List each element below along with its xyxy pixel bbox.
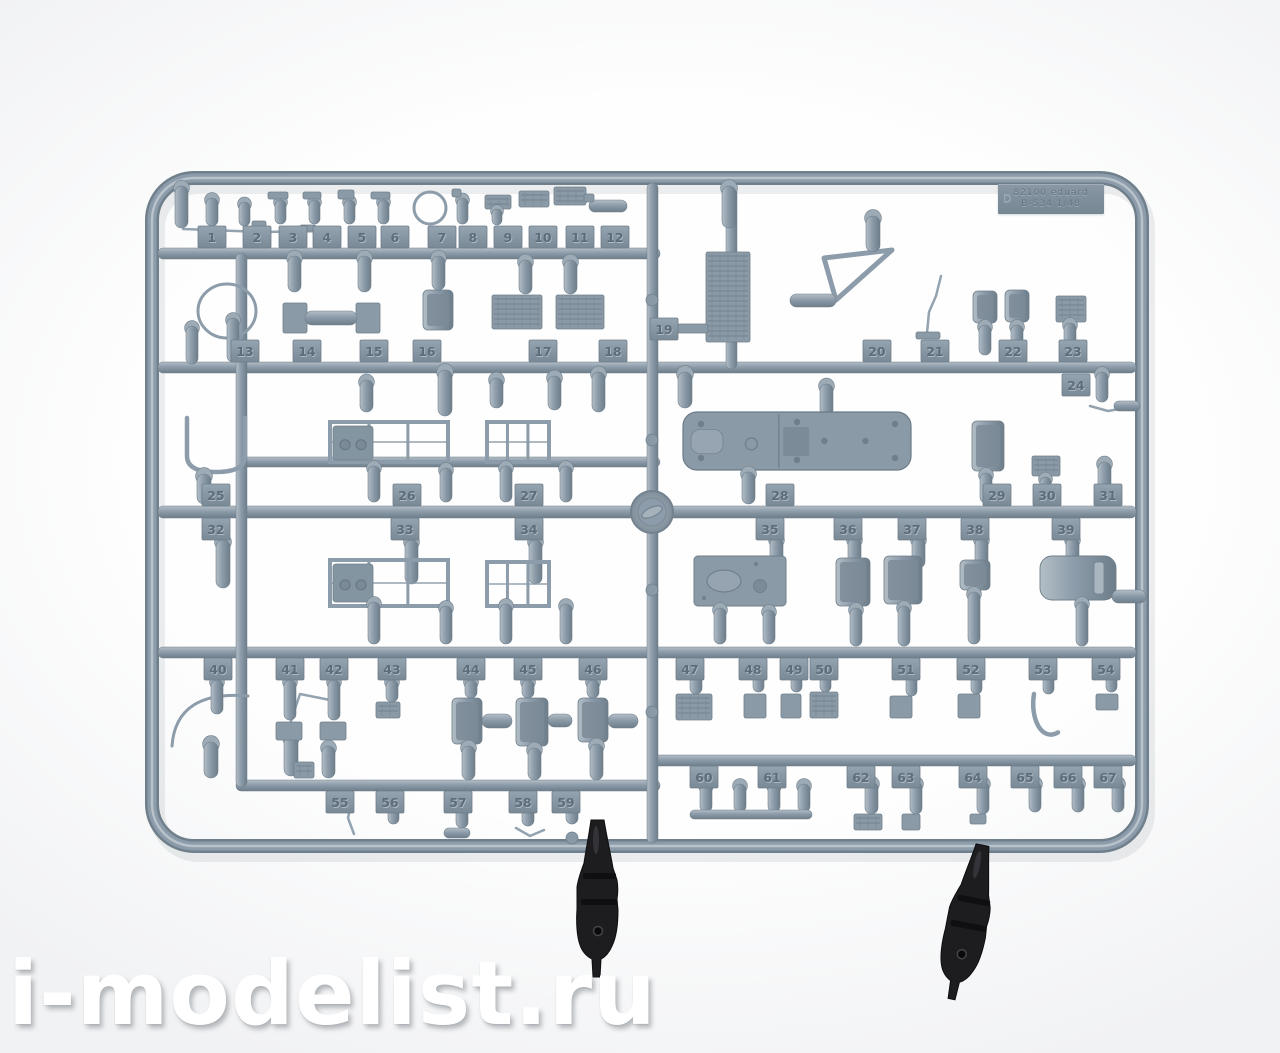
- part-number: 23: [1064, 344, 1081, 359]
- part-tab-12: 1212: [601, 226, 629, 248]
- part-tab-60: 6060: [690, 766, 718, 788]
- part-number: 45: [519, 662, 536, 677]
- part-number: 2: [253, 230, 262, 245]
- sprue-part: [206, 198, 218, 226]
- sprue-part: [482, 714, 512, 728]
- part-tab-23: 2323: [1059, 340, 1087, 362]
- part-tab-44: 4444: [457, 658, 485, 680]
- sprue-part: [898, 606, 910, 646]
- part-number: 59: [557, 795, 574, 810]
- part-number: 67: [1099, 770, 1116, 785]
- part-tab-7: 77: [428, 226, 456, 248]
- part-tab-65: 6565: [1011, 766, 1039, 788]
- part-tab-32: 3232: [202, 518, 230, 540]
- sprue-label-tag: D 82100 eduard B-534 1/48: [998, 184, 1104, 214]
- tag-kit-name: B-534 1/48: [998, 199, 1104, 210]
- part-number: 34: [520, 522, 538, 537]
- product-photo: 1122334455667788991010111112121313141415…: [0, 0, 1280, 1053]
- part-number: 52: [962, 662, 979, 677]
- part-number: 43: [383, 662, 400, 677]
- sprue-part: [522, 680, 534, 698]
- mold-mark: D: [1003, 192, 1011, 205]
- part-tab-62: 6262: [847, 766, 875, 788]
- sprue-part: [958, 694, 980, 718]
- part-detail: [356, 580, 366, 590]
- part-number: 46: [584, 662, 602, 677]
- part-tab-35: 3535: [756, 518, 784, 540]
- part-number: 20: [868, 344, 886, 359]
- sprue-part: [646, 706, 658, 718]
- part-number: 10: [534, 230, 552, 245]
- part-tab-13: 1313: [231, 340, 259, 362]
- sprue-part: [763, 610, 775, 644]
- part-detail: [794, 419, 800, 425]
- part-number: 9: [504, 230, 513, 245]
- part-number: 7: [438, 230, 447, 245]
- part-tab-59: 5959: [552, 791, 580, 813]
- part-tab-22: 2222: [999, 340, 1027, 362]
- sprue-part: [303, 192, 321, 199]
- part-number: 40: [209, 662, 227, 677]
- part-number: 15: [365, 344, 382, 359]
- part-number: 27: [520, 488, 537, 503]
- sprue-part: [587, 680, 599, 698]
- sprue-part: [970, 814, 986, 824]
- part-tab-51: 5151: [892, 658, 920, 680]
- sprue-part: [276, 722, 302, 740]
- sprue-part: [284, 680, 296, 720]
- sprue-part: [320, 722, 346, 740]
- part-detail: [892, 455, 898, 461]
- part-number: 57: [449, 795, 466, 810]
- part-tab-46: 4646: [579, 658, 607, 680]
- part-number: 58: [514, 795, 531, 810]
- part-number: 17: [534, 344, 551, 359]
- part-detail: [977, 295, 993, 319]
- part-tab-49: 4949: [780, 658, 808, 680]
- part-tab-41: 4141: [276, 658, 304, 680]
- sprue-part: [294, 762, 314, 778]
- part-detail: [456, 702, 478, 740]
- sprue-part: [927, 276, 941, 333]
- sprue-part: [333, 564, 373, 602]
- part-tab-14: 1414: [293, 340, 321, 362]
- sprue-runner: [158, 248, 660, 259]
- part-tab-27: 2727: [515, 484, 543, 506]
- part-detail: [520, 702, 544, 742]
- sprue-part: [360, 380, 373, 412]
- part-tab-42: 4242: [320, 658, 348, 680]
- sprue-part: [438, 370, 452, 416]
- sprue-part: [560, 466, 572, 502]
- part-number: 36: [839, 522, 857, 537]
- clip-ridge: [583, 873, 616, 879]
- sprue-part: [592, 372, 605, 412]
- sprue-part: [564, 260, 577, 294]
- sprue-part: [519, 191, 549, 207]
- sprue-part: [646, 434, 658, 446]
- part-tab-10: 1010: [529, 226, 557, 248]
- part-number: 63: [897, 770, 914, 785]
- sprue-part: [1096, 372, 1108, 402]
- sprue-part: [500, 466, 512, 502]
- part-detail: [862, 438, 868, 444]
- part-tab-56: 5656: [376, 791, 404, 813]
- part-number: 61: [763, 770, 780, 785]
- sprue-part: [1076, 602, 1088, 646]
- part-number: 33: [396, 522, 413, 537]
- part-number: 26: [398, 488, 416, 503]
- sprue-part: [744, 694, 766, 718]
- sprue-part: [338, 190, 354, 199]
- part-tab-20: 2020: [863, 340, 891, 362]
- part-detail: [888, 560, 918, 600]
- part-tab-2: 22: [243, 226, 271, 248]
- part-number: 21: [926, 344, 943, 359]
- part-tab-16: 1616: [413, 340, 441, 362]
- sprue-part: [378, 200, 389, 224]
- sprue-part: [344, 200, 355, 224]
- sprue-part: [452, 189, 461, 197]
- sprue-part: [722, 186, 736, 228]
- part-detail: [340, 580, 350, 590]
- part-tab-30: 3030: [1033, 484, 1061, 506]
- part-number: 50: [815, 662, 833, 677]
- sprue-part: [560, 604, 572, 644]
- sprue-part: [590, 744, 603, 780]
- part-number: 44: [462, 662, 480, 677]
- sprue-part: [457, 198, 468, 224]
- sprue-part: [283, 303, 307, 333]
- sprue-part: [968, 592, 980, 644]
- sprue-part: [490, 378, 503, 408]
- part-detail: [783, 427, 809, 456]
- part-number: 42: [325, 662, 342, 677]
- part-number: 22: [1004, 344, 1021, 359]
- part-detail: [356, 440, 366, 450]
- part-number: 64: [964, 770, 982, 785]
- part-detail: [754, 580, 767, 593]
- part-number: 32: [207, 522, 224, 537]
- part-detail: [754, 562, 758, 566]
- sprue-part: [322, 746, 335, 778]
- sprue-part: [1114, 401, 1140, 411]
- part-tab-48: 4848: [739, 658, 767, 680]
- part-tab-25: 2525: [202, 484, 230, 506]
- sprue-part: [376, 702, 400, 718]
- part-number: 8: [469, 230, 478, 245]
- sprue-part: [820, 384, 833, 416]
- part-tab-64: 6464: [959, 766, 987, 788]
- sprue-part: [492, 209, 502, 225]
- sprue-part: [678, 372, 692, 408]
- part-tab-21: 2121: [921, 340, 949, 362]
- part-number: 5: [358, 230, 367, 245]
- part-number: 19: [655, 322, 672, 337]
- part-number: 60: [695, 770, 713, 785]
- sprue-part: [268, 192, 288, 199]
- part-detail: [691, 429, 723, 453]
- part-detail: [427, 294, 449, 326]
- part-number: 24: [1067, 378, 1085, 393]
- part-tab-39: 3939: [1052, 518, 1080, 540]
- sprue-part: [850, 608, 862, 646]
- sprue-part: [646, 294, 658, 306]
- sprue-part: [1112, 590, 1146, 603]
- sprue-part: [275, 200, 286, 224]
- part-tab-4: 44: [313, 226, 341, 248]
- sprue-part: [465, 680, 477, 698]
- part-number: 3: [289, 230, 298, 245]
- part-detail: [698, 421, 704, 427]
- sprue-part: [414, 192, 446, 224]
- clip-ridge: [581, 899, 617, 905]
- part-number: 30: [1038, 488, 1056, 503]
- part-tab-34: 3434: [515, 518, 543, 540]
- part-tab-6: 66: [381, 226, 409, 248]
- part-detail: [582, 702, 604, 738]
- part-tab-24: 2424: [1062, 374, 1090, 396]
- sprue-part: [1040, 556, 1116, 600]
- sprue-part: [444, 828, 470, 838]
- sprue-part: [440, 468, 452, 502]
- part-number: 16: [418, 344, 436, 359]
- sprue-part: [781, 694, 801, 718]
- part-tab-43: 4343: [378, 658, 406, 680]
- sprue-part: [734, 784, 746, 812]
- clip-body: [932, 841, 1003, 1003]
- part-tab-58: 5858: [509, 791, 537, 813]
- part-number: 12: [606, 230, 623, 245]
- part-tab-45: 4545: [514, 658, 542, 680]
- part-number: 6: [391, 230, 400, 245]
- part-number: 55: [331, 795, 348, 810]
- sprue-part: [440, 606, 452, 644]
- sprue: 1122334455667788991010111112121313141415…: [0, 0, 1280, 1053]
- sprue-part: [368, 466, 380, 502]
- part-number: 39: [1057, 522, 1074, 537]
- part-tab-40: 4040: [204, 658, 232, 680]
- part-tab-11: 1111: [566, 226, 594, 248]
- part-number: 53: [1034, 662, 1051, 677]
- part-tab-61: 6161: [758, 766, 786, 788]
- sprue-part: [239, 202, 250, 226]
- part-tab-54: 5454: [1092, 658, 1120, 680]
- tag-kit-number: 82100 eduard: [998, 188, 1104, 199]
- sprue-part: [175, 186, 188, 228]
- part-detail: [840, 562, 866, 602]
- sprue-part: [186, 326, 198, 364]
- part-tab-26: 2626: [393, 484, 421, 506]
- sprue-part: [211, 680, 223, 714]
- sprue-part: [866, 216, 880, 252]
- part-tab-36: 3636: [834, 518, 862, 540]
- sprue-part: [902, 814, 920, 830]
- sprue-part: [216, 540, 230, 588]
- part-tab-17: 1717: [529, 340, 557, 362]
- part-number: 31: [1099, 488, 1116, 503]
- part-number: 62: [852, 770, 869, 785]
- part-tab-57: 5757: [444, 791, 472, 813]
- part-detail: [707, 570, 741, 592]
- sprue-part: [890, 696, 912, 718]
- part-tab-18: 1818: [599, 340, 627, 362]
- sprue-part: [1096, 694, 1118, 710]
- sprue-part: [646, 584, 658, 596]
- part-number: 37: [903, 522, 920, 537]
- sprue-part: [358, 256, 371, 292]
- sprue-part: [528, 748, 541, 780]
- part-number: 35: [761, 522, 778, 537]
- part-tab-33: 3333: [391, 518, 419, 540]
- sprue-part: [742, 472, 755, 504]
- sprue-part: [386, 680, 398, 702]
- part-detail: [698, 455, 704, 461]
- part-number: 1: [208, 230, 217, 245]
- part-number: 65: [1016, 770, 1033, 785]
- sprue-part: [519, 260, 532, 294]
- part-number: 51: [897, 662, 914, 677]
- sprue-part: [288, 256, 301, 292]
- sprue-part: [824, 250, 892, 300]
- part-detail: [821, 438, 827, 444]
- part-tab-66: 6666: [1054, 766, 1082, 788]
- part-number: 18: [604, 344, 621, 359]
- part-number: 14: [298, 344, 316, 359]
- part-tab-37: 3737: [898, 518, 926, 540]
- part-number: 11: [571, 230, 588, 245]
- part-detail: [976, 425, 1000, 467]
- sprue-runner: [236, 780, 660, 791]
- sprue-part: [204, 742, 218, 778]
- part-tab-28: 2828: [766, 484, 794, 506]
- sprue-part: [608, 714, 638, 728]
- sprue-part: [432, 256, 445, 290]
- sprue-part: [1033, 694, 1058, 735]
- sprue-part: [328, 680, 340, 720]
- part-number: 13: [236, 344, 253, 359]
- sprue-part: [714, 608, 726, 644]
- sprue-part: [516, 828, 544, 836]
- part-detail: [892, 421, 898, 427]
- part-number: 29: [988, 488, 1005, 503]
- sprue-part: [305, 311, 357, 325]
- sprue-part: [584, 194, 594, 202]
- part-tab-55: 5555: [326, 791, 354, 813]
- sprue-part: [979, 325, 991, 355]
- part-number: 56: [381, 795, 399, 810]
- sprue-part: [690, 810, 812, 819]
- part-tab-50: 5050: [810, 658, 838, 680]
- watermark: i-modelist.ru: [8, 942, 657, 1045]
- sprue-part: [371, 192, 390, 199]
- part-detail: [1009, 294, 1025, 318]
- sprue-part: [589, 200, 627, 212]
- sprue-runner: [652, 755, 1136, 766]
- part-tab-63: 6363: [892, 766, 920, 788]
- part-tab-8: 88: [459, 226, 487, 248]
- part-number: 28: [771, 488, 788, 503]
- part-tab-52: 5252: [957, 658, 985, 680]
- sprue-part: [356, 303, 380, 333]
- sprue-part: [566, 832, 578, 844]
- part-tab-31: 3131: [1094, 484, 1122, 506]
- part-tab-29: 2929: [983, 484, 1011, 506]
- part-detail: [964, 564, 986, 586]
- part-detail: [1094, 562, 1104, 594]
- clip-pin: [594, 927, 603, 936]
- part-tab-1: 11: [198, 226, 226, 248]
- part-tab-9: 99: [494, 226, 522, 248]
- clip-pin: [957, 949, 968, 960]
- sprue-part: [798, 784, 810, 812]
- part-number: 66: [1059, 770, 1077, 785]
- part-number: 49: [785, 662, 802, 677]
- sprue-part: [333, 426, 373, 460]
- sprue-part: [500, 604, 512, 644]
- part-tab-53: 5353: [1029, 658, 1057, 680]
- sprue-part: [790, 294, 836, 307]
- clip-highlight: [593, 826, 599, 854]
- part-number: 48: [744, 662, 761, 677]
- part-detail: [340, 440, 350, 450]
- holder-clip-2: [932, 841, 1003, 1003]
- part-detail: [794, 457, 800, 463]
- sprue-part: [916, 332, 940, 339]
- part-tab-38: 3838: [961, 518, 989, 540]
- part-number: 47: [681, 662, 698, 677]
- part-tab-19: 1919: [650, 318, 678, 340]
- part-number: 41: [281, 662, 298, 677]
- part-tab-3: 33: [279, 226, 307, 248]
- part-tab-5: 55: [348, 226, 376, 248]
- part-number: 25: [207, 488, 224, 503]
- sprue-part: [309, 200, 320, 224]
- sprue-part: [548, 376, 561, 410]
- sprue-part: [368, 602, 380, 644]
- part-tab-47: 4747: [676, 658, 704, 680]
- part-number: 4: [323, 230, 332, 245]
- part-number: 38: [966, 522, 983, 537]
- part-tab-15: 1515: [360, 340, 388, 362]
- sprue-part: [462, 746, 475, 780]
- part-number: 54: [1097, 662, 1115, 677]
- part-tab-67: 6767: [1094, 766, 1122, 788]
- sprue-part: [548, 714, 572, 727]
- part-detail: [702, 596, 706, 600]
- mold-stamp: [631, 491, 673, 533]
